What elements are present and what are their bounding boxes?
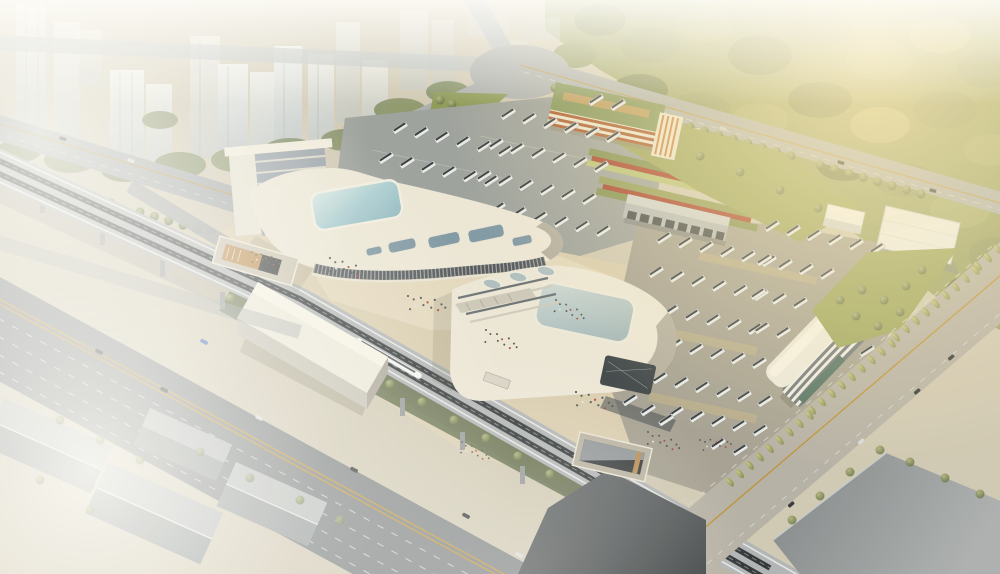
warm-tint: [0, 0, 1000, 574]
rendering-canvas: [0, 0, 1000, 574]
aerial-rendering: [0, 0, 1000, 574]
